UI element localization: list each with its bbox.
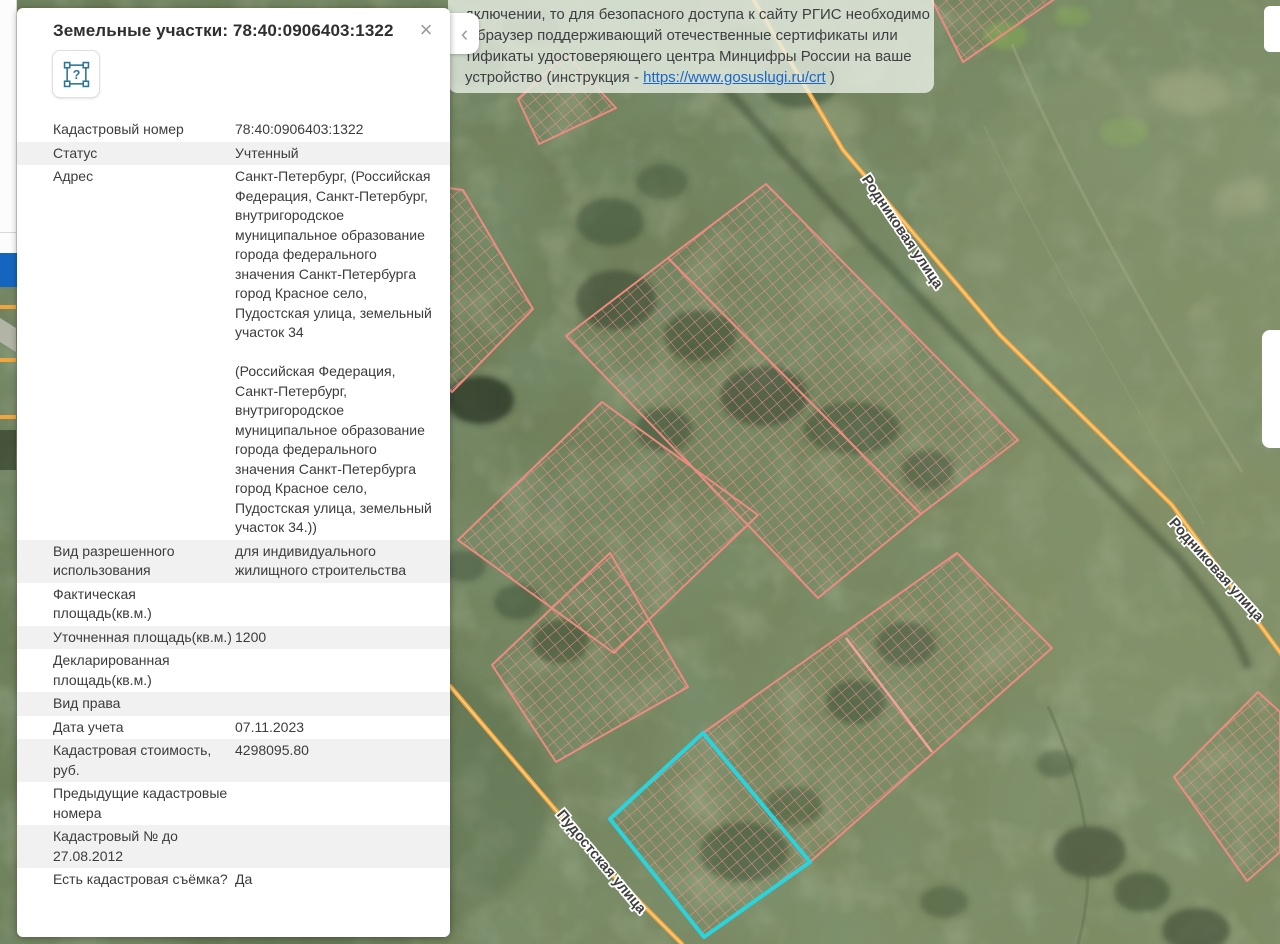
svg-text:?: ? — [72, 68, 80, 82]
table-row: АдресСанкт-Петербург, (Российская Федера… — [17, 165, 450, 540]
table-row: Предыдущие кадастровые номера — [17, 782, 450, 825]
notification-line: тификаты удостоверяющего центра Минцифры… — [465, 46, 924, 67]
row-label: Дата учета — [53, 718, 235, 738]
table-row: Кадастровый номер78:40:0906403:1322 — [17, 118, 450, 142]
row-label: Вид разрешенного использования — [53, 542, 235, 581]
table-row: СтатусУчтенный — [17, 142, 450, 166]
instruction-link[interactable]: https://www.gosuslugi.ru/crt — [643, 69, 826, 86]
attribute-table: Кадастровый номер78:40:0906403:1322Стату… — [17, 118, 450, 892]
row-label: Уточненная площадь(кв.м.) — [53, 628, 235, 648]
row-value: 07.11.2023 — [235, 718, 438, 738]
notification-line: устройство (инструкция - https://www.gos… — [465, 67, 924, 88]
panel-title: Земельные участки: 78:40:0906403:1322 — [53, 21, 413, 41]
row-label: Вид права — [53, 694, 235, 714]
hidden-left-panel-divider — [0, 232, 17, 233]
hidden-left-panel-blue-item[interactable] — [0, 253, 17, 287]
parcel-info-help-button[interactable]: ? — [52, 50, 100, 98]
table-row: Декларированная площадь(кв.м.) — [17, 649, 450, 692]
notification-bar: дключении, то для безопасного доступа к … — [448, 0, 934, 93]
row-value: 78:40:0906403:1322 — [235, 120, 438, 140]
row-label: Кадастровая стоимость, руб. — [53, 741, 235, 780]
row-label: Кадастровый № до 27.08.2012 — [53, 827, 235, 866]
row-value: для индивидуального жилищного строительс… — [235, 542, 438, 581]
row-value: 1200 — [235, 628, 438, 648]
right-edge-panel[interactable] — [1264, 6, 1280, 52]
table-row: Вид разрешенного использованиядля индиви… — [17, 540, 450, 583]
table-row: Кадастровый № до 27.08.2012 — [17, 825, 450, 868]
table-row: Фактическая площадь(кв.м.) — [17, 583, 450, 626]
parcel-info-panel: Земельные участки: 78:40:0906403:1322 × … — [17, 8, 450, 937]
row-label: Декларированная площадь(кв.м.) — [53, 651, 235, 690]
row-value: Да — [235, 870, 438, 890]
parcel-question-icon: ? — [63, 61, 90, 88]
table-row: Кадастровая стоимость, руб.4298095.80 — [17, 739, 450, 782]
table-row: Вид права — [17, 692, 450, 716]
table-row: Уточненная площадь(кв.м.)1200 — [17, 626, 450, 650]
notification-line: дключении, то для безопасного доступа к … — [465, 4, 924, 25]
hidden-left-panel[interactable] — [0, 0, 17, 253]
table-row: Есть кадастровая съёмка?Да — [17, 868, 450, 892]
notification-line: ь браузер поддерживающий отечественные с… — [465, 25, 924, 46]
table-row: Дата учета07.11.2023 — [17, 716, 450, 740]
row-label: Фактическая площадь(кв.м.) — [53, 585, 235, 624]
row-label: Статус — [53, 144, 235, 164]
close-icon[interactable]: × — [414, 18, 438, 42]
row-label: Кадастровый номер — [53, 120, 235, 140]
row-label: Предыдущие кадастровые номера — [53, 784, 235, 823]
right-edge-panel[interactable] — [1262, 330, 1280, 448]
row-label: Адрес — [53, 167, 235, 187]
row-value: Санкт-Петербург, (Российская Федерация, … — [235, 167, 438, 538]
row-label: Есть кадастровая съёмка? — [53, 870, 235, 890]
panel-collapse-button[interactable]: ‹ — [450, 13, 479, 54]
row-value: 4298095.80 — [235, 741, 438, 761]
row-value: Учтенный — [235, 144, 438, 164]
